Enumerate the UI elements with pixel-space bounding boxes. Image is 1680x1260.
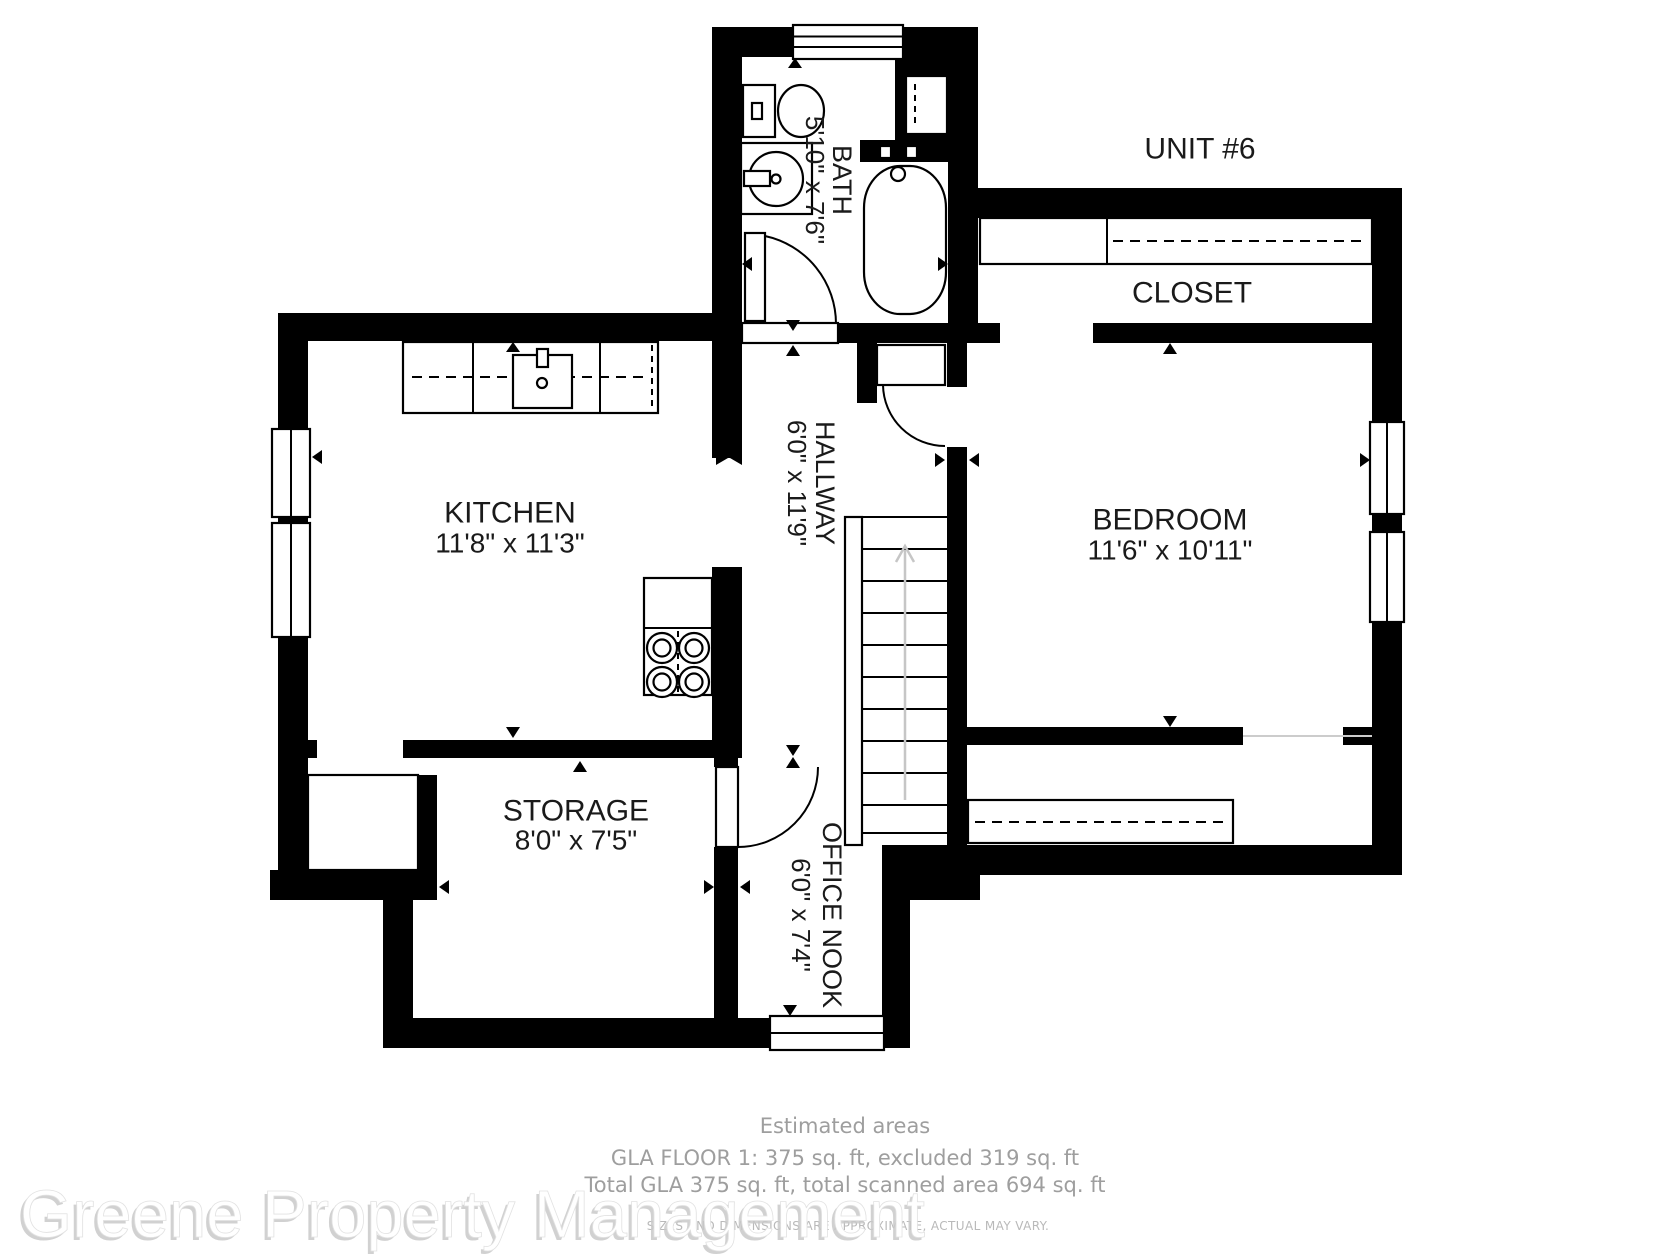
marker-triangle [506, 727, 520, 738]
stove-icon [644, 578, 712, 697]
marker-triangle [704, 880, 714, 894]
bath-cabinet [906, 76, 947, 134]
wall [965, 727, 1243, 745]
wall [910, 845, 1402, 875]
stairs-up-arrow-icon [896, 546, 914, 800]
bedroom-window [1370, 532, 1404, 622]
wall [714, 847, 738, 1048]
storage-door-icon [716, 767, 818, 847]
unit-label: UNIT #6 [1144, 133, 1255, 166]
storage-label: STORAGE [503, 795, 649, 828]
kitchen-fixtures [308, 342, 712, 870]
marker-triangle [740, 880, 750, 894]
staircase [845, 517, 947, 845]
marker-triangle [573, 761, 587, 772]
bath-dims: 5'10" x 7'6" [800, 116, 830, 244]
wall [278, 313, 742, 341]
wall [948, 188, 1402, 218]
wall [418, 775, 437, 872]
hallway-label: HALLWAY [810, 421, 840, 545]
marker-triangle [783, 1005, 797, 1016]
bedroom-closet-rod [968, 800, 1233, 843]
marker-triangle [1360, 453, 1370, 467]
wall [857, 343, 877, 403]
kitchen-label: KITCHEN [444, 497, 576, 530]
floor-plan-drawing: UNIT #6 CLOSET KITCHEN 11'8" x 11'3" BED… [0, 0, 1680, 1260]
watermark: Greene Property Management Greene Proper… [17, 1177, 925, 1255]
kitchen-window [272, 523, 310, 637]
kitchen-window [272, 429, 310, 517]
wall [948, 323, 1000, 343]
wall [738, 1018, 774, 1048]
wall [1093, 323, 1372, 343]
office-nook-label: OFFICE NOOK [817, 822, 847, 1008]
wall [712, 567, 742, 758]
marker-triangle [1163, 343, 1177, 354]
footer-heading: Estimated areas [760, 1114, 931, 1138]
wall [860, 140, 948, 162]
footer-gla-line: GLA FLOOR 1: 375 sq. ft, excluded 319 sq… [611, 1146, 1079, 1170]
wall [712, 27, 742, 458]
wall [947, 447, 967, 845]
storage-dims: 8'0" x 7'5" [515, 825, 637, 856]
floor-plan-page: UNIT #6 CLOSET KITCHEN 11'8" x 11'3" BED… [0, 0, 1680, 1260]
wall [947, 343, 967, 387]
marker-triangle [786, 757, 800, 768]
wall [278, 740, 317, 758]
marker-triangle [786, 345, 800, 356]
office-nook-window [770, 1016, 884, 1050]
bedroom-door-icon [877, 345, 945, 446]
bathtub-icon [864, 146, 946, 314]
marker-triangle [312, 450, 322, 464]
wall [714, 758, 738, 767]
bath-window [793, 25, 903, 59]
closet-shelf-rod [980, 218, 1372, 264]
bedroom-label: BEDROOM [1092, 504, 1247, 537]
alcove-shelf [308, 775, 418, 870]
marker-triangle [969, 453, 979, 467]
watermark-text: Greene Property Management [20, 1177, 925, 1252]
marker-triangle [786, 745, 800, 756]
wall [383, 1018, 740, 1048]
office-nook-dims: 6'0" x 7'4" [786, 858, 816, 972]
bath-door-icon [742, 233, 838, 343]
bedroom-window [1370, 422, 1404, 514]
marker-triangle [1163, 716, 1177, 727]
marker-triangle [439, 880, 449, 894]
closet-label: CLOSET [1132, 277, 1252, 310]
wall [838, 323, 963, 343]
bath-label: BATH [827, 145, 857, 215]
kitchen-dims: 11'8" x 11'3" [435, 528, 584, 559]
wall [403, 740, 742, 758]
bedroom-dims: 11'6" x 10'11" [1088, 535, 1253, 566]
kitchen-sink-icon [513, 349, 572, 408]
hallway-dims: 6'0" x 11'9" [782, 420, 812, 546]
wall [882, 845, 910, 1048]
marker-triangle [935, 453, 945, 467]
